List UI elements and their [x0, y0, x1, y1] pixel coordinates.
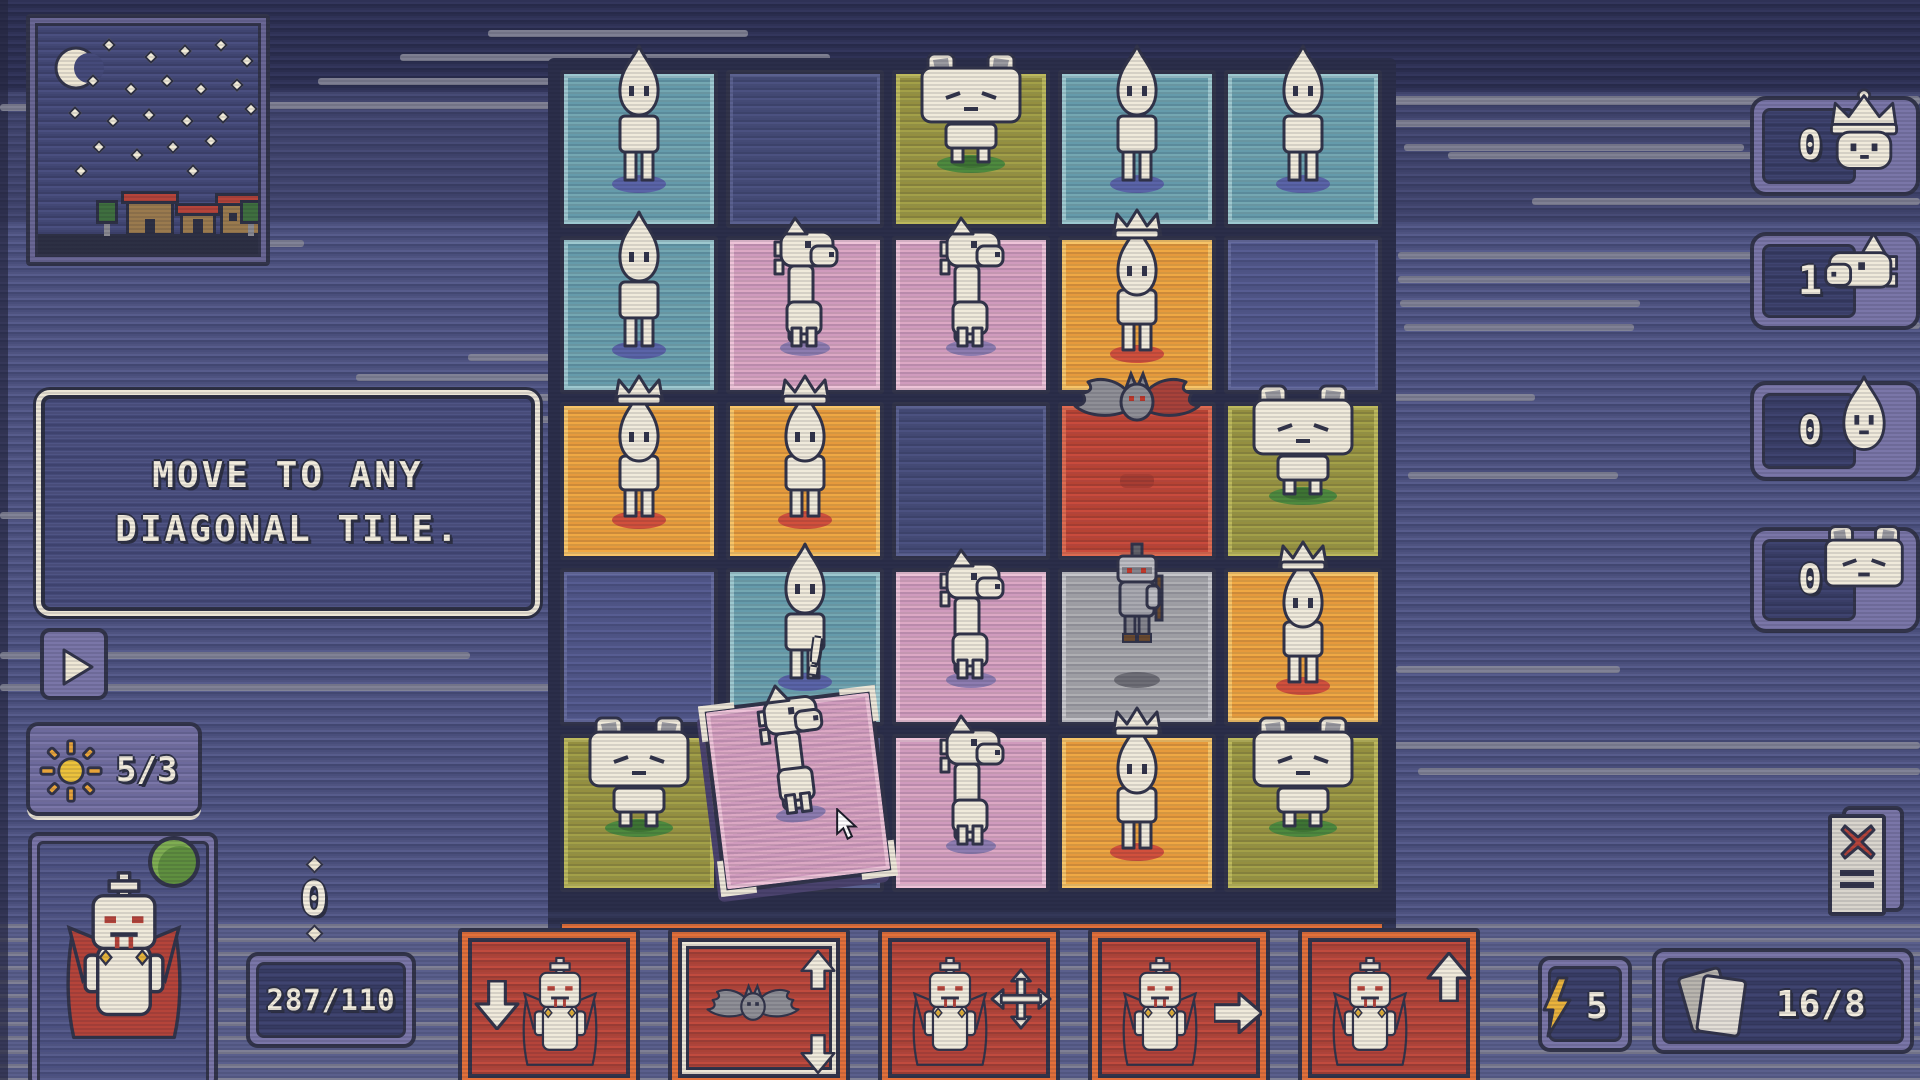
arrow-down-icon [800, 1034, 836, 1074]
cat-icon [1818, 515, 1910, 611]
vampire-icon [1108, 958, 1212, 1080]
tooltip-line1: MOVE TO ANY [152, 449, 423, 503]
roof [121, 191, 179, 204]
card-move-down[interactable] [458, 928, 640, 1080]
bat-icon [698, 978, 808, 1038]
board-tile-r1-c5[interactable] [1224, 70, 1382, 228]
dragged-card-tile[interactable] [701, 688, 894, 894]
board-tile-r3-c3[interactable] [892, 402, 1050, 560]
ground [38, 234, 258, 254]
arrow-up-icon [1426, 952, 1472, 1002]
cloud-streak [1396, 666, 1620, 673]
lightning-icon [1540, 976, 1574, 1038]
board-tile-r1-c4[interactable] [1058, 70, 1216, 228]
tree [104, 222, 110, 236]
star [142, 108, 156, 122]
board-tile-r1-c2[interactable] [726, 70, 884, 228]
board-tile-r2-c5[interactable] [1224, 236, 1382, 394]
energy-panel: 5 [1538, 956, 1632, 1052]
cloud-streak [1532, 198, 1920, 205]
board-tile-r3-c1[interactable] [560, 402, 718, 560]
discard-card-button[interactable] [1828, 798, 1914, 918]
star [124, 82, 138, 96]
cloud-streak [1408, 472, 1618, 479]
queen-icon [1818, 84, 1910, 180]
star [106, 114, 120, 128]
crescent-moon-icon [52, 42, 104, 94]
card-move-any-direction[interactable] [878, 928, 1060, 1080]
tree-canopy [96, 200, 118, 224]
arrow-all-directions-icon [990, 968, 1052, 1030]
coin-counter: 0 [282, 858, 346, 950]
night-village-scene [26, 14, 270, 266]
x-icon [1840, 824, 1876, 860]
star [68, 106, 82, 120]
arrow-right-icon [1214, 992, 1262, 1034]
board-tile-r4-c3[interactable] [892, 568, 1050, 726]
screen-edge-shade [0, 0, 8, 1080]
energy-count: 5 [1586, 986, 1608, 1027]
star [214, 38, 228, 52]
tree-canopy [240, 200, 261, 224]
vampire-hero-portrait [44, 860, 204, 1080]
star [180, 114, 194, 128]
health-panel: 287/110 [246, 952, 416, 1048]
cards-icon [1670, 958, 1758, 1050]
star [160, 74, 174, 88]
sun-counter-panel: 5/3 [26, 722, 202, 816]
board-tile-r3-c2[interactable] [726, 402, 884, 560]
star [74, 164, 88, 178]
vampire-icon [898, 958, 1002, 1080]
piece-counter-cat: 0 [1750, 527, 1920, 633]
vampire-icon [1318, 958, 1422, 1080]
star [92, 140, 106, 154]
board-tile-r2-c1[interactable] [560, 236, 718, 394]
cloud-streak [1400, 300, 1640, 307]
board-tile-r2-c2[interactable] [726, 236, 884, 394]
board-tile-r2-c3[interactable] [892, 236, 1050, 394]
play-icon [62, 648, 96, 686]
deck-count: 16/8 [1776, 984, 1867, 1025]
board-tile-r4-c1[interactable] [560, 568, 718, 726]
star [178, 44, 192, 58]
star [102, 38, 116, 52]
star [194, 82, 208, 96]
deck-panel[interactable]: 16/8 [1652, 948, 1914, 1054]
board-tile-r5-c3[interactable] [892, 734, 1050, 892]
health-value: 287/110 [266, 983, 395, 1017]
cloud-streak [488, 30, 748, 37]
tooltip-line2: DIAGONAL TILE. [115, 503, 460, 557]
vampire-icon [508, 958, 612, 1080]
play-button[interactable] [40, 628, 108, 700]
tree [248, 222, 254, 236]
sun-counter-value: 5/3 [116, 750, 177, 790]
sun-icon [38, 738, 104, 804]
cloud-streak [1418, 768, 1920, 775]
board-tile-r5-c5[interactable] [1224, 734, 1382, 892]
star [130, 148, 144, 162]
star [244, 102, 258, 116]
piece-counter-pawn: 0 [1750, 381, 1920, 481]
board-tile-r3-c5[interactable] [1224, 402, 1382, 560]
star [240, 54, 254, 68]
star [204, 134, 218, 148]
arrow-up-icon [800, 950, 836, 990]
star [144, 50, 158, 64]
board-tile-r5-c1[interactable] [560, 734, 718, 892]
piece-counter-queen: 0 [1750, 96, 1920, 196]
coin-count: 0 [282, 871, 346, 927]
board-tile-r1-c1[interactable] [560, 70, 718, 228]
board-tile-r1-c3[interactable] [892, 70, 1050, 228]
cloud-streak [1404, 324, 1634, 331]
cloud-streak [1404, 144, 1744, 151]
card-move-right[interactable] [1088, 928, 1270, 1080]
card-bat-shift[interactable] [668, 928, 850, 1080]
blood-spot [1120, 474, 1154, 488]
pawn-icon [1818, 369, 1910, 465]
piece-counter-knight: 1 [1750, 232, 1920, 330]
cloud-streak [1392, 120, 1792, 127]
card-move-up[interactable] [1298, 928, 1480, 1080]
board-tile-r4-c4[interactable] [1058, 568, 1216, 726]
move-hint-tooltip: MOVE TO ANY DIAGONAL TILE. [36, 390, 540, 616]
cloud-streak [1392, 742, 1920, 749]
mouse-cursor [834, 808, 860, 840]
game-screen: MOVE TO ANY DIAGONAL TILE. 5/3 0 [0, 0, 1920, 1080]
board-tile-r4-c5[interactable] [1224, 568, 1382, 726]
board-tile-r2-c4[interactable] [1058, 236, 1216, 394]
star [166, 140, 180, 154]
hero-orb [148, 836, 200, 888]
knight-icon [1818, 220, 1910, 316]
star [216, 110, 230, 124]
house [126, 200, 174, 236]
arrow-down-icon [474, 980, 520, 1030]
star [230, 78, 244, 92]
board-tile-r5-c4[interactable] [1058, 734, 1216, 892]
star [186, 164, 200, 178]
